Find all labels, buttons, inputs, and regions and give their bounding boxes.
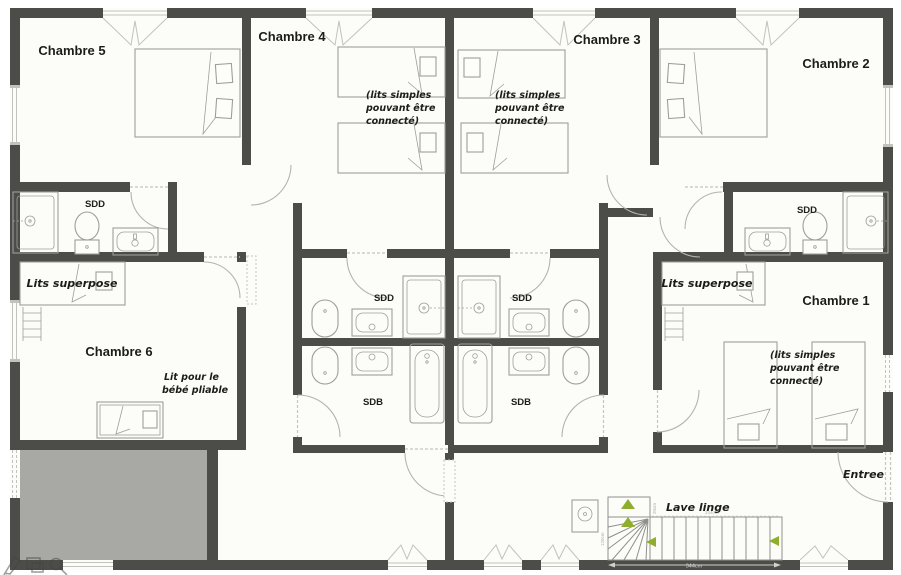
room-label-chambre-2: Chambre 2 (802, 56, 869, 71)
bunk-bed-label: Lits superpose (662, 277, 754, 290)
svg-text:pouvant être: pouvant être (494, 103, 565, 114)
dimension-label: 20cm (652, 503, 657, 514)
wall-segment (454, 249, 510, 258)
svg-text:(lits simples: (lits simples (770, 350, 836, 361)
sdb-label: SDB (511, 397, 531, 408)
svg-text:connecté): connecté) (366, 116, 419, 127)
sdb-label: SDB (363, 397, 383, 408)
svg-text:connecté): connecté) (495, 116, 548, 127)
room-label-chambre-4: Chambre 4 (258, 29, 326, 44)
window (883, 355, 893, 392)
svg-text:connecté): connecté) (770, 376, 823, 387)
wall-segment (10, 440, 246, 450)
wall-segment (522, 560, 541, 570)
sdd-label: SDD (797, 205, 817, 216)
wall-segment (848, 560, 893, 570)
wall-segment (237, 252, 246, 262)
wall-segment (445, 18, 454, 445)
wall-segment (10, 182, 130, 192)
wall-segment (599, 203, 608, 395)
window (63, 560, 113, 570)
wall-segment (454, 338, 599, 346)
wall-segment (799, 8, 893, 18)
wall-segment (653, 432, 662, 445)
floor-plan-drawing: 244cm 120cm 20cm 344cm Chambre 5 Chambre… (0, 0, 901, 575)
wall-segment (242, 18, 251, 165)
bunk-bed-label: Lits superpose (27, 277, 119, 290)
wall-segment (599, 437, 608, 453)
door-opening (883, 452, 893, 502)
wall-segment (10, 145, 20, 300)
wall-segment (448, 445, 608, 453)
dimension-label: 120cm (600, 532, 605, 546)
wall-segment (550, 249, 599, 258)
wall-segment (302, 249, 347, 258)
entrance-label: Entree (843, 468, 884, 481)
svg-text:pouvant être: pouvant être (769, 363, 840, 374)
wall-segment (723, 182, 893, 192)
wall-segment (167, 8, 306, 18)
svg-text:(lits simples: (lits simples (366, 90, 432, 101)
wall-segment (650, 18, 659, 165)
wall-segment (168, 182, 177, 252)
wall-segment (293, 203, 302, 395)
wall-segment (10, 362, 20, 450)
room-label-chambre-6: Chambre 6 (85, 344, 152, 359)
svg-text:pouvant être: pouvant être (365, 103, 436, 114)
wall-segment (427, 560, 484, 570)
dimension-label: 344cm (686, 564, 703, 570)
wall-segment (883, 502, 893, 560)
wall-segment (10, 498, 20, 560)
window (10, 300, 20, 362)
svg-text:bébé pliable: bébé pliable (162, 385, 229, 396)
room-label-chambre-3: Chambre 3 (573, 32, 640, 47)
wall-segment (883, 8, 893, 85)
washer-label: Lave linge (666, 501, 730, 514)
window (10, 450, 20, 498)
svg-text:(lits simples: (lits simples (495, 90, 561, 101)
wall-segment (302, 338, 445, 346)
wall-segment (883, 392, 893, 452)
floor-plan-page: 244cm 120cm 20cm 344cm Chambre 5 Chambre… (0, 0, 901, 575)
door-opening (444, 460, 455, 502)
wall-segment (387, 249, 445, 258)
sdd-label: SDD (85, 199, 105, 210)
svg-text:Lit pour le: Lit pour le (164, 372, 219, 383)
window (883, 85, 893, 147)
sdd-label: SDD (512, 293, 532, 304)
void-area (20, 450, 207, 560)
room-label-chambre-5: Chambre 5 (38, 43, 105, 58)
wall-segment (113, 560, 388, 570)
wall-segment (237, 307, 246, 448)
wall-segment (10, 8, 103, 18)
wall-segment (595, 8, 736, 18)
wall-segment (372, 8, 533, 18)
wall-segment (207, 450, 218, 560)
room-label-chambre-1: Chambre 1 (802, 293, 869, 308)
sdd-label: SDD (374, 293, 394, 304)
wall-segment (653, 445, 893, 453)
wall-segment (724, 182, 733, 252)
window (10, 85, 20, 145)
wall-segment (10, 8, 20, 85)
wall-segment (293, 445, 405, 453)
